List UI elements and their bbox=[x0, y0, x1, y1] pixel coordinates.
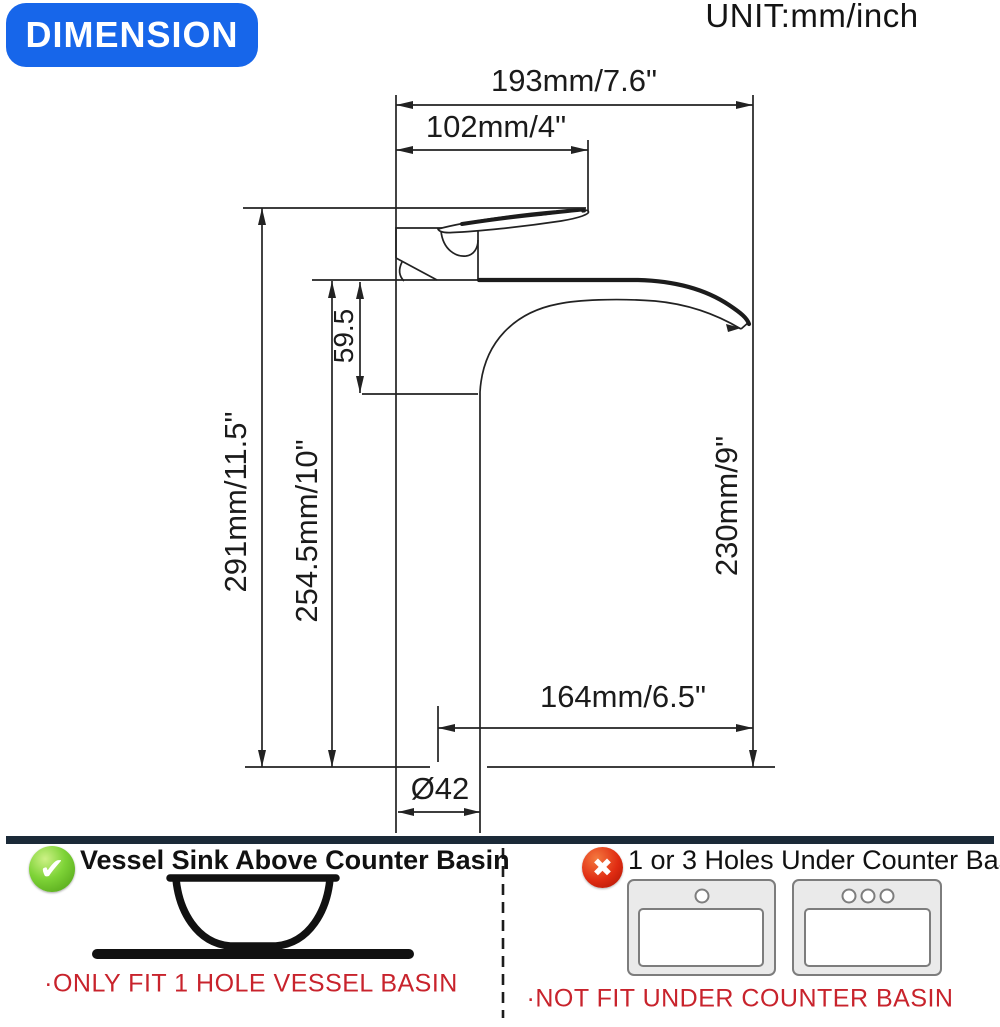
right-panel-note: ·NOT FIT UNDER COUNTER BASIN bbox=[527, 985, 954, 1014]
one-hole-basin bbox=[628, 880, 775, 975]
dim-label-base-diameter: Ø42 bbox=[411, 771, 470, 807]
dim-label-handle-width: 102mm/4" bbox=[426, 109, 566, 145]
faucet-handle-pivot bbox=[441, 231, 478, 256]
right-panel-title: 1 or 3 Holes Under Counter Basin bbox=[628, 845, 1000, 876]
dimension-sheet: DIMENSION UNIT:mm/inch 193mm/7.6" 102mm/… bbox=[0, 0, 1000, 1027]
left-panel-title: Vessel Sink Above Counter Basin bbox=[80, 845, 510, 876]
cross-icon: ✖ bbox=[582, 847, 623, 888]
left-panel-note: ·ONLY FIT 1 HOLE VESSEL BASIN bbox=[44, 970, 458, 999]
check-icon: ✔ bbox=[29, 846, 75, 892]
under-counter-basins bbox=[628, 880, 941, 975]
vessel-bowl-drawing bbox=[97, 878, 409, 954]
footer-top-border bbox=[6, 836, 994, 844]
spout-outer-curve bbox=[479, 280, 749, 324]
unit-label: UNIT:mm/inch bbox=[705, 0, 918, 35]
dim-label-spout-reach: 164mm/6.5" bbox=[540, 679, 706, 715]
dimension-badge: DIMENSION bbox=[6, 3, 258, 67]
faucet-handle-base bbox=[396, 228, 478, 280]
dim-label-height-to-spout-top: 254.5mm/10" bbox=[289, 439, 325, 622]
faucet-base-detail bbox=[400, 262, 404, 281]
dim-label-overall-width: 193mm/7.6" bbox=[491, 63, 657, 99]
dim-label-spout-drop: 59.5 bbox=[328, 309, 360, 364]
three-hole-basin bbox=[793, 880, 941, 975]
dim-label-spout-outlet-height: 230mm/9" bbox=[709, 436, 745, 576]
dim-label-overall-height: 291mm/11.5" bbox=[218, 411, 254, 592]
faucet-inner-outline bbox=[480, 300, 741, 833]
bowl-body bbox=[176, 879, 330, 946]
